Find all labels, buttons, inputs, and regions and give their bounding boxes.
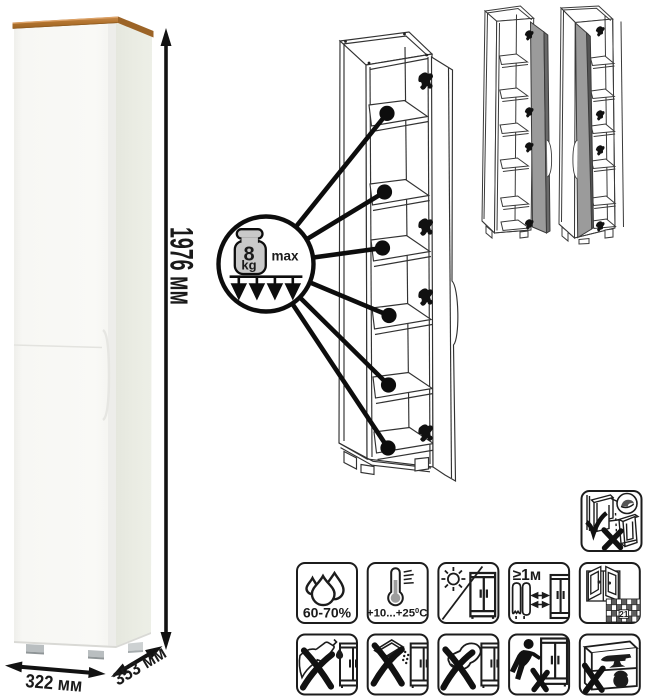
- svg-text:≥1м: ≥1м: [513, 567, 542, 584]
- svg-text:kg: kg: [241, 258, 256, 273]
- svg-text:1976 мм: 1976 мм: [164, 227, 200, 305]
- svg-text:max: max: [272, 249, 300, 264]
- svg-text:+10...+250C: +10...+250C: [367, 606, 428, 620]
- svg-text:60-70%: 60-70%: [303, 605, 352, 621]
- svg-text:322 мм: 322 мм: [25, 671, 84, 697]
- svg-text:21: 21: [619, 609, 629, 619]
